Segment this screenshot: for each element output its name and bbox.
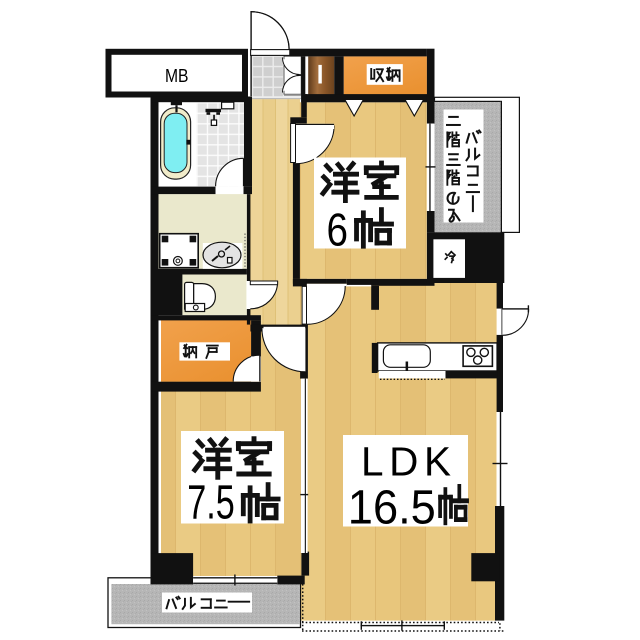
svg-text:6: 6 bbox=[327, 203, 349, 255]
svg-text:MB: MB bbox=[165, 65, 189, 86]
svg-text:16.5: 16.5 bbox=[348, 480, 436, 534]
svg-text:7.5: 7.5 bbox=[187, 477, 235, 530]
svg-text:LDK: LDK bbox=[361, 438, 451, 484]
